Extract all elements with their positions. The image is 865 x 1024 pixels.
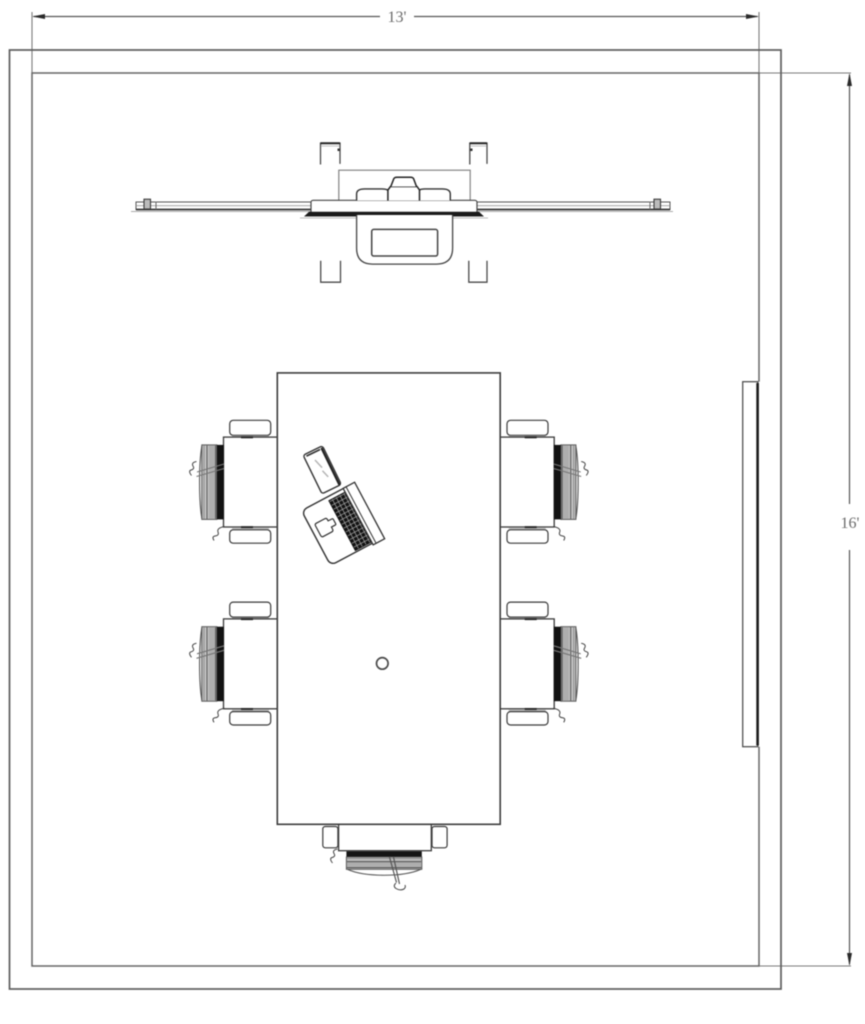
svg-text:13': 13' [388, 9, 407, 26]
svg-text:16': 16' [841, 515, 860, 532]
